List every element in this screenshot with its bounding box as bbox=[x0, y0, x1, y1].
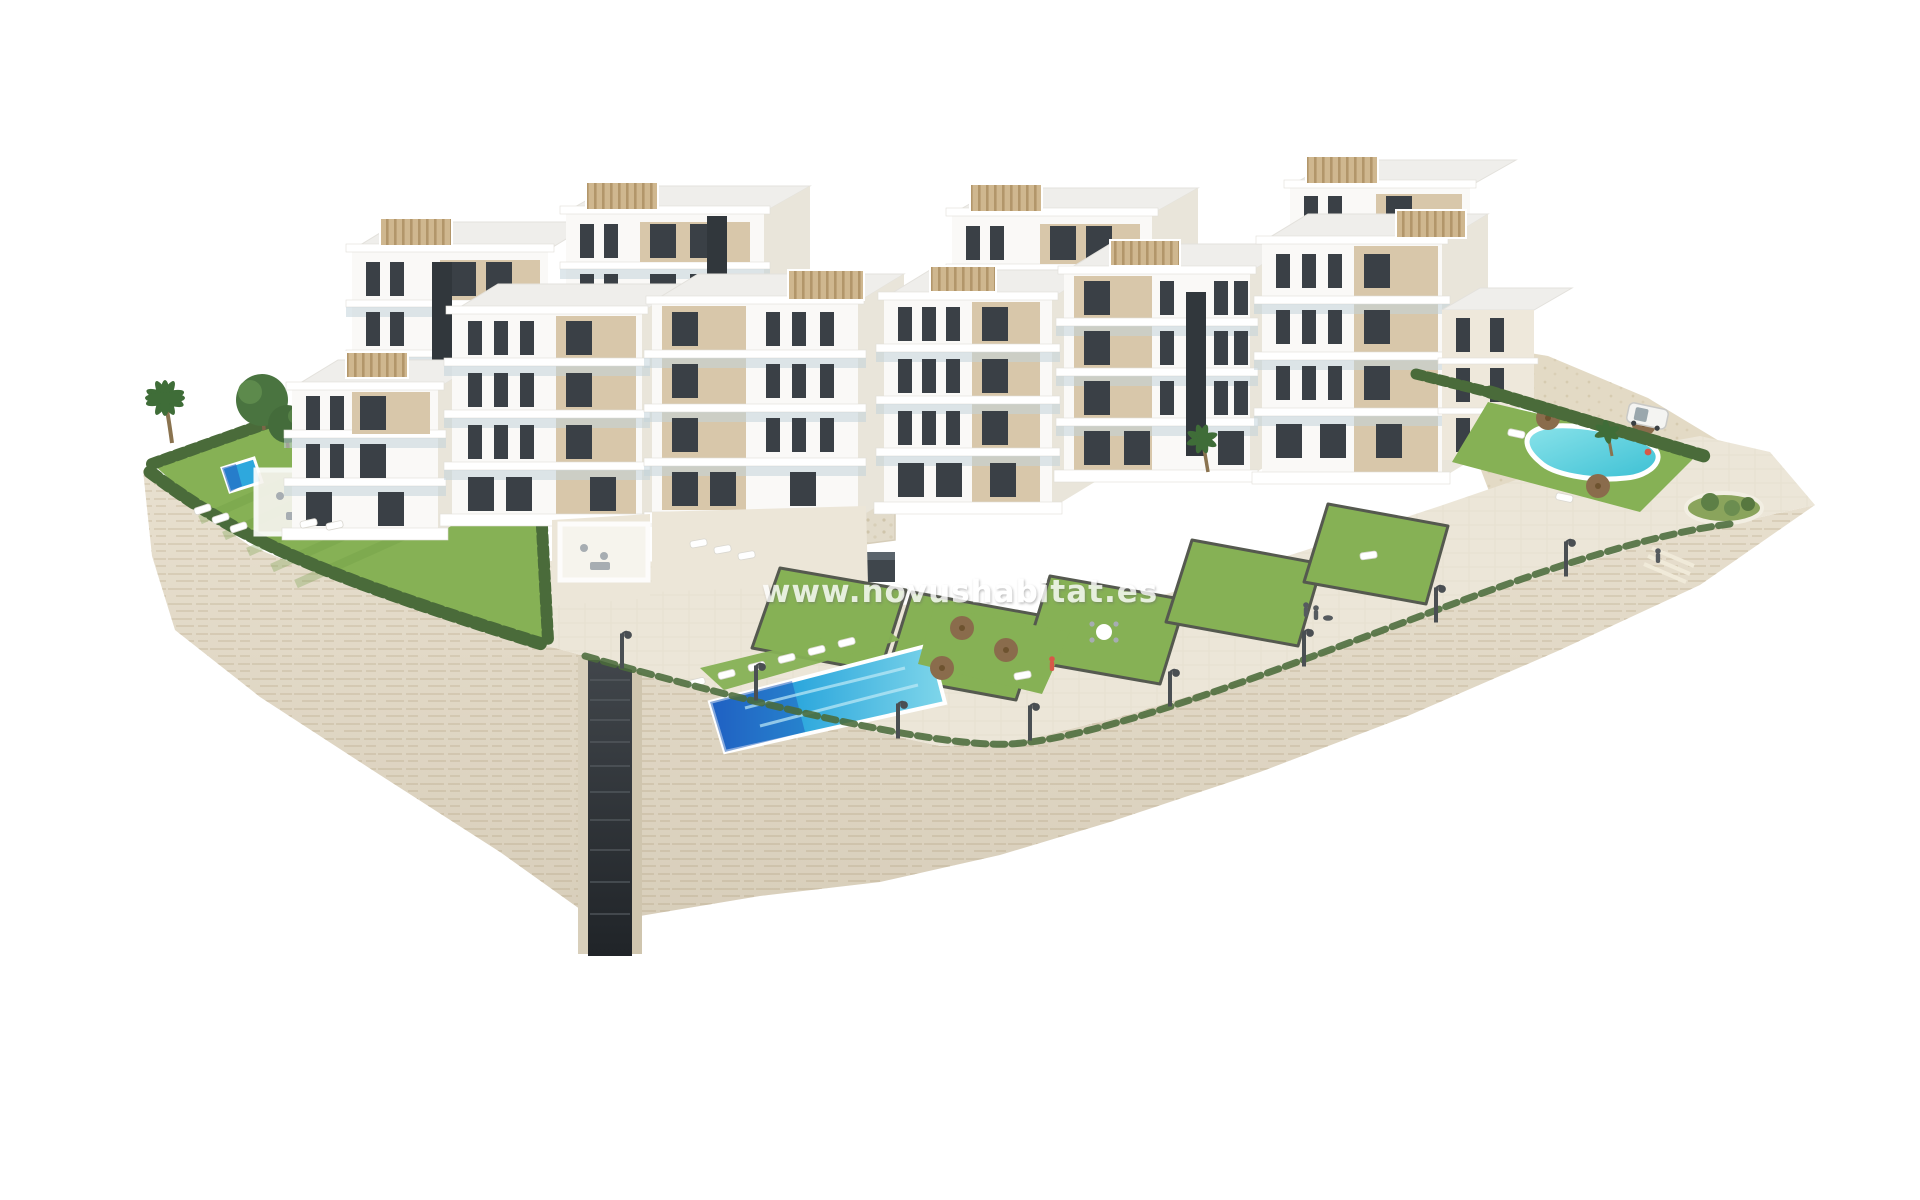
watermark-text: www.novushabitat.es bbox=[762, 574, 1158, 610]
architectural-render: www.novushabitat.es bbox=[0, 0, 1920, 1200]
terrace-slab bbox=[1252, 472, 1450, 484]
swimmer-figure bbox=[1645, 449, 1652, 456]
render-canvas: www.novushabitat.es bbox=[0, 0, 1920, 1200]
terrace-slab bbox=[282, 528, 448, 540]
roof-pergola bbox=[1110, 240, 1180, 266]
palm-tree bbox=[144, 379, 185, 443]
watermark: www.novushabitat.es bbox=[762, 574, 1158, 610]
roof-pergola bbox=[788, 270, 864, 300]
planter-shrubs bbox=[1686, 493, 1762, 523]
roof-pergola bbox=[346, 352, 408, 378]
roof-pergola bbox=[930, 266, 996, 292]
roof-pergola bbox=[970, 184, 1042, 212]
ground-terrace-1 bbox=[552, 514, 650, 606]
terrace-slab bbox=[874, 502, 1062, 514]
roof-pergola bbox=[586, 182, 658, 210]
staircase-shaft bbox=[578, 656, 642, 956]
terrace-slab bbox=[1054, 470, 1258, 482]
roof-pergola bbox=[1306, 156, 1378, 184]
garden-table bbox=[1096, 624, 1112, 640]
apartment-building-b5 bbox=[644, 270, 904, 524]
roof-pergola bbox=[1396, 210, 1466, 238]
roof-pergola bbox=[380, 218, 452, 246]
swimmer-figure bbox=[1049, 656, 1055, 671]
dog bbox=[1323, 615, 1333, 621]
